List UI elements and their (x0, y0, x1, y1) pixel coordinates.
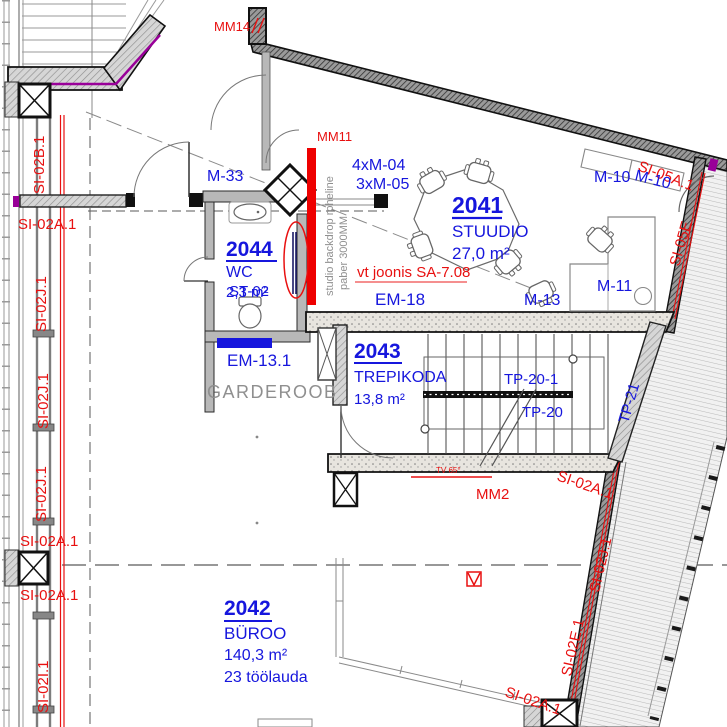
column-southwest (5, 550, 48, 586)
furniture-label-3xm05: 3xM-05 (356, 176, 409, 193)
element-label-tp20-1: TP-20-1 (504, 371, 558, 388)
insulation-mark (13, 196, 19, 207)
room-note-byroo: 23 töölauda (224, 669, 308, 686)
furniture-label-m33: M-33 (207, 168, 244, 185)
furniture-label-m13: M-13 (524, 292, 561, 309)
element-label-em18: EM-18 (375, 290, 425, 309)
wc-sink (229, 202, 271, 223)
furniture-label-m11: M-11 (597, 278, 632, 295)
element-label-st02-overlay: ST-02 (229, 283, 269, 300)
room-area-trepikoda: 13,8 m² (354, 391, 405, 408)
marker-label-mm11: MM11 (317, 129, 352, 144)
furniture-label-m10a: M-10 (594, 169, 631, 186)
room-number-2043: 2043 (354, 340, 401, 363)
marker-label-mm2: MM2 (476, 486, 509, 503)
element-label-em13: EM-13.1 (227, 351, 291, 370)
stool (635, 288, 652, 305)
room-name-trepikoda: TREPIKODA (354, 369, 447, 386)
annotation-backdrop-line1: studio backdrop roheline (324, 176, 336, 296)
marker-label-mm14: MM14 (214, 19, 250, 34)
floor-plan-canvas: MM14 MM11 MM2 TV 65° vt joonis SA-7.08 S… (0, 0, 727, 727)
room-name-wc: WC (226, 264, 253, 281)
shaft-box (318, 328, 336, 380)
backdrop-bar-mm11 (307, 148, 316, 305)
room-number-2041: 2041 (452, 192, 503, 218)
floor-plan-page: MM14 MM11 MM2 TV 65° vt joonis SA-7.08 S… (0, 0, 727, 727)
room-name-stuudio: STUUDIO (452, 222, 529, 241)
section-label-si02i: SI-02I.1 (35, 660, 52, 713)
section-label-si02a-west: SI-02A.1 (18, 216, 76, 233)
room-name-byroo: BÜROO (224, 624, 286, 643)
section-label-si02j-1: SI-02J.1 (33, 276, 50, 332)
annotation-vt-joonis: vt joonis SA-7.08 (357, 264, 470, 281)
annotation-backdrop-line2: paber 3000MM (338, 216, 350, 290)
column-northwest (19, 84, 50, 117)
stair-south-wall (328, 454, 622, 472)
room-area-byroo: 140,3 m² (224, 647, 288, 664)
mm14-wall-stub (249, 8, 266, 44)
section-label-si02a-sw1: SI-02A.1 (20, 533, 78, 550)
wc-toilet (239, 297, 261, 328)
marker-label-tv65: TV 65° (436, 466, 461, 475)
furniture-label-4xm04: 4xM-04 (352, 157, 405, 174)
bench-em13 (217, 338, 272, 348)
section-label-si02j-3: SI-02J.1 (33, 466, 50, 522)
section-label-si02b: SI-02B.1 (31, 136, 48, 194)
section-label-si02j-2: SI-02J.1 (35, 373, 52, 429)
rail-post (569, 355, 577, 363)
room-number-2044: 2044 (226, 238, 273, 261)
zone-label-garderoob: GARDEROOB (207, 382, 338, 402)
section-label-si02a-sw2: SI-02A.1 (20, 587, 78, 604)
room-area-stuudio: 27,0 m² (452, 244, 510, 263)
rail-post (421, 425, 429, 433)
element-label-tp20: TP-20 (522, 404, 563, 421)
column-stairs-sw (334, 473, 357, 506)
stair-north-wall (306, 312, 674, 332)
room-number-2042: 2042 (224, 597, 271, 620)
